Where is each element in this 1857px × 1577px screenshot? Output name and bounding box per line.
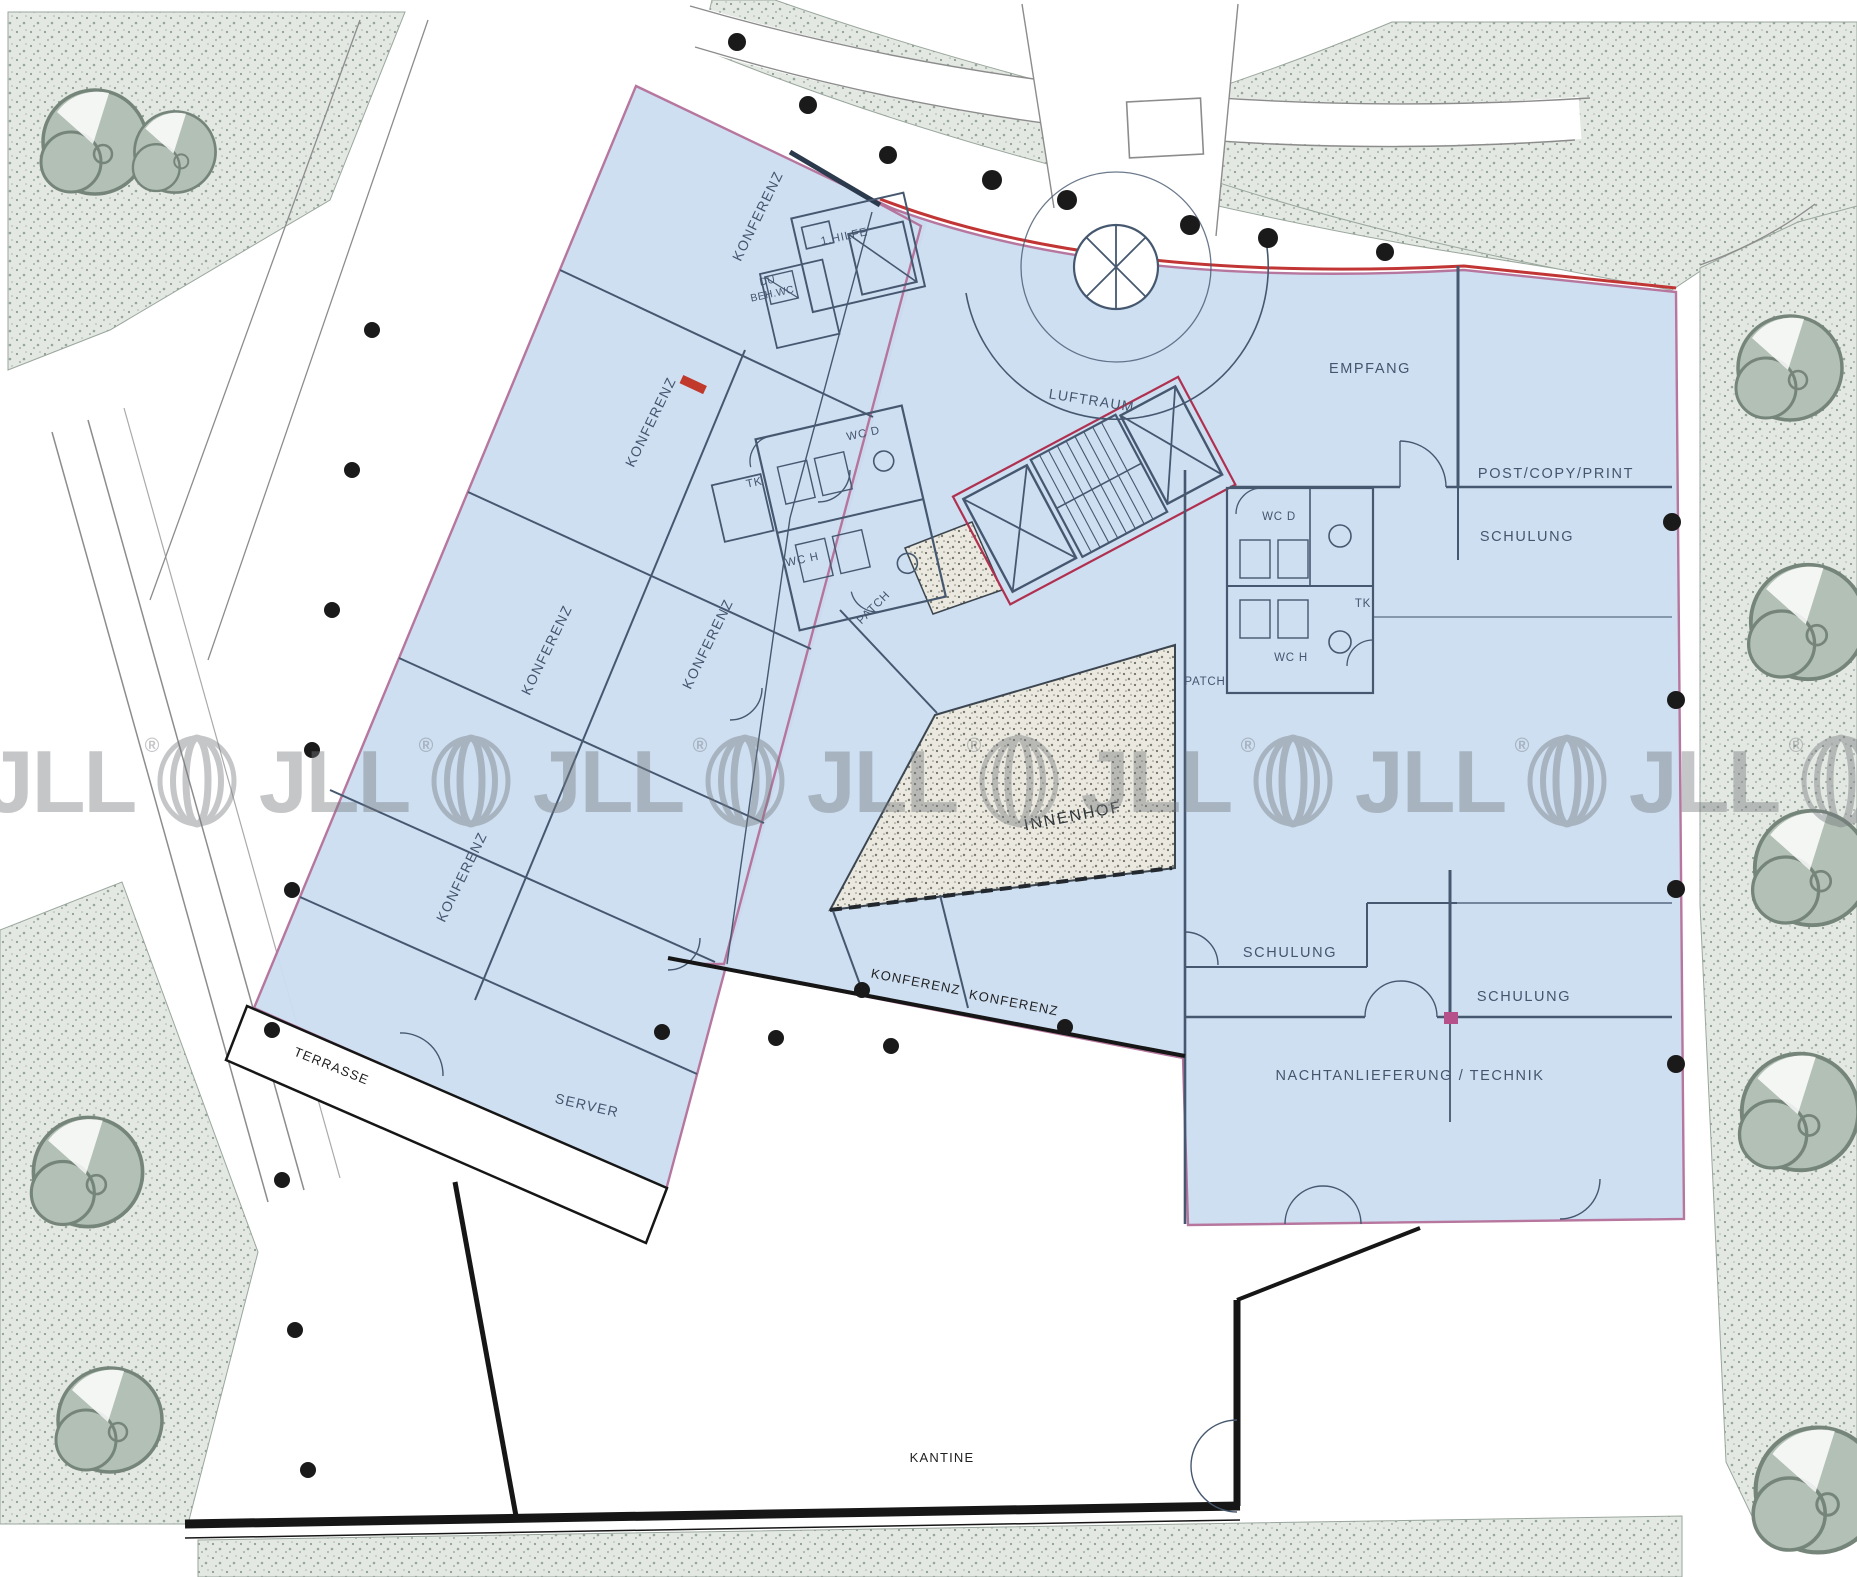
watermark-brand: JLL <box>259 732 410 831</box>
watermark-brand: JLL <box>1081 732 1232 831</box>
watermark-reg-icon: ® <box>145 735 160 757</box>
watermark-row: JLL ® JLL ® JLL ® JLL ® <box>0 732 1857 831</box>
watermark-reg-icon: ® <box>1789 735 1804 757</box>
watermark-reg-icon: ® <box>1515 735 1530 757</box>
room-label-nachtanlieferung-technik: NACHTANLIEFERUNG / TECHNIK <box>1275 1068 1544 1084</box>
room-label-kantine: KANTINE <box>910 1450 975 1465</box>
watermark-brand: JLL <box>0 732 135 831</box>
watermark-brand: JLL <box>533 732 684 831</box>
watermark-brand: JLL <box>807 732 958 831</box>
floor-plan-canvas: KONFERENZ 1.HILFE DU BEH.WC KONFERENZ KO… <box>0 0 1857 1577</box>
room-label-schulung-ne: SCHULUNG <box>1480 529 1574 545</box>
room-label-wcd-east: WC D <box>1262 511 1296 523</box>
room-label-patch-east: PATCH <box>1184 676 1225 688</box>
watermark-reg-icon: ® <box>693 735 708 757</box>
room-label-empfang: EMPFANG <box>1329 361 1411 377</box>
floor-plan-page: KONFERENZ 1.HILFE DU BEH.WC KONFERENZ KO… <box>0 0 1857 1577</box>
room-label-tk-east: TK <box>1355 598 1371 610</box>
room-label-wch-east: WC H <box>1274 652 1308 664</box>
watermark-reg-icon: ® <box>1241 735 1256 757</box>
watermark-brand: JLL <box>1355 732 1506 831</box>
watermark-reg-icon: ® <box>967 735 982 757</box>
room-label-schulung-se: SCHULUNG <box>1477 989 1571 1005</box>
room-label-post-copy-print: POST/COPY/PRINT <box>1478 466 1634 482</box>
watermark-reg-icon: ® <box>419 735 434 757</box>
watermark-brand: JLL <box>1629 732 1780 831</box>
door-marker-pink <box>1444 1012 1458 1024</box>
entry-planter <box>1127 98 1204 158</box>
room-label-schulung-mid: SCHULUNG <box>1243 945 1337 961</box>
